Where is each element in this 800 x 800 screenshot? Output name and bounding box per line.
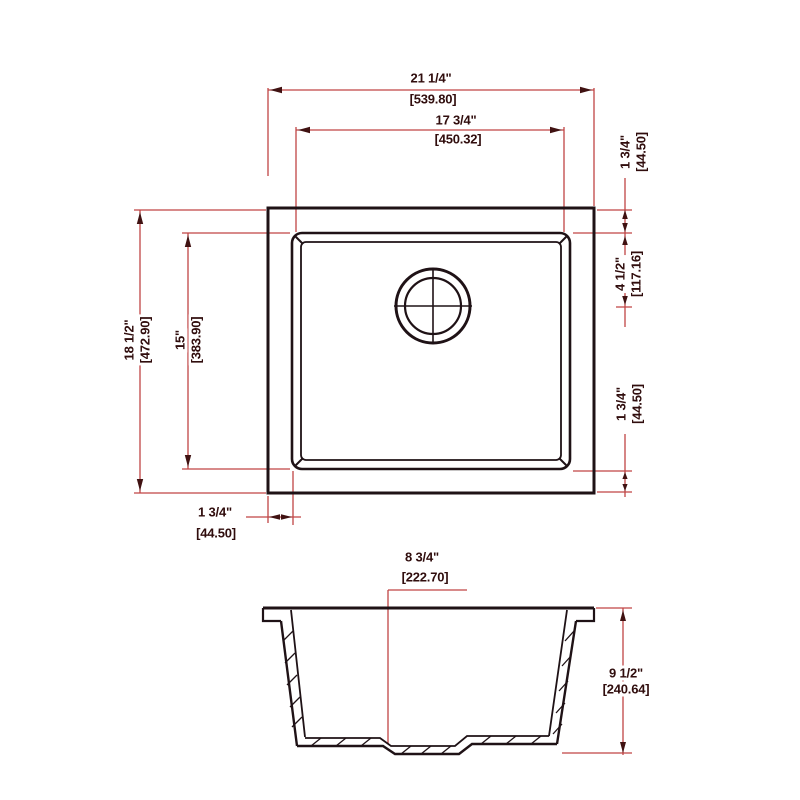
dim-bottom-rim-inches: 1 3/4" [198, 505, 232, 520]
dim-top-inner-mm: [450.32] [435, 132, 482, 147]
dim-bottom-rim-mm: [44.50] [196, 526, 236, 541]
dim-section-drain-inches: 8 3/4" [405, 550, 439, 565]
drawing-linework [0, 0, 800, 800]
dim-right-rim-top-label: 1 3/4" [44.50] [618, 130, 649, 174]
bowl-inner-edge [301, 242, 561, 460]
dimension-arrowheads [137, 87, 628, 753]
section-outer-walls [281, 621, 576, 746]
dim-top-outer-mm: [539.80] [410, 92, 457, 107]
dim-section-depth-label: 9 1/2" [240.64] [601, 666, 652, 697]
dim-right-drain-label: 4 1/2" [117.16] [613, 249, 644, 299]
section-inner-walls [291, 610, 567, 746]
dim-section-drain-mm: [222.70] [402, 570, 449, 585]
dimension-lines [134, 88, 632, 755]
technical-drawing-canvas: 21 1/4" [539.80] 17 3/4" [450.32] 1 3/4"… [0, 0, 800, 800]
dim-left-inner-label: 15" [383.90] [173, 315, 204, 366]
dim-left-outer-label: 18 1/2" [472.90] [122, 315, 153, 366]
dim-top-inner-inches: 17 3/4" [436, 113, 477, 128]
dim-right-rim-bottom-label: 1 3/4" [44.50] [614, 382, 645, 426]
sink-outer-rim [268, 208, 594, 493]
dim-top-outer-inches: 21 1/4" [411, 71, 452, 86]
top-view-sink-outline [268, 208, 594, 493]
section-view-sink-outline [263, 608, 594, 754]
section-rim-lips [263, 608, 594, 621]
drain-outline [394, 268, 472, 344]
